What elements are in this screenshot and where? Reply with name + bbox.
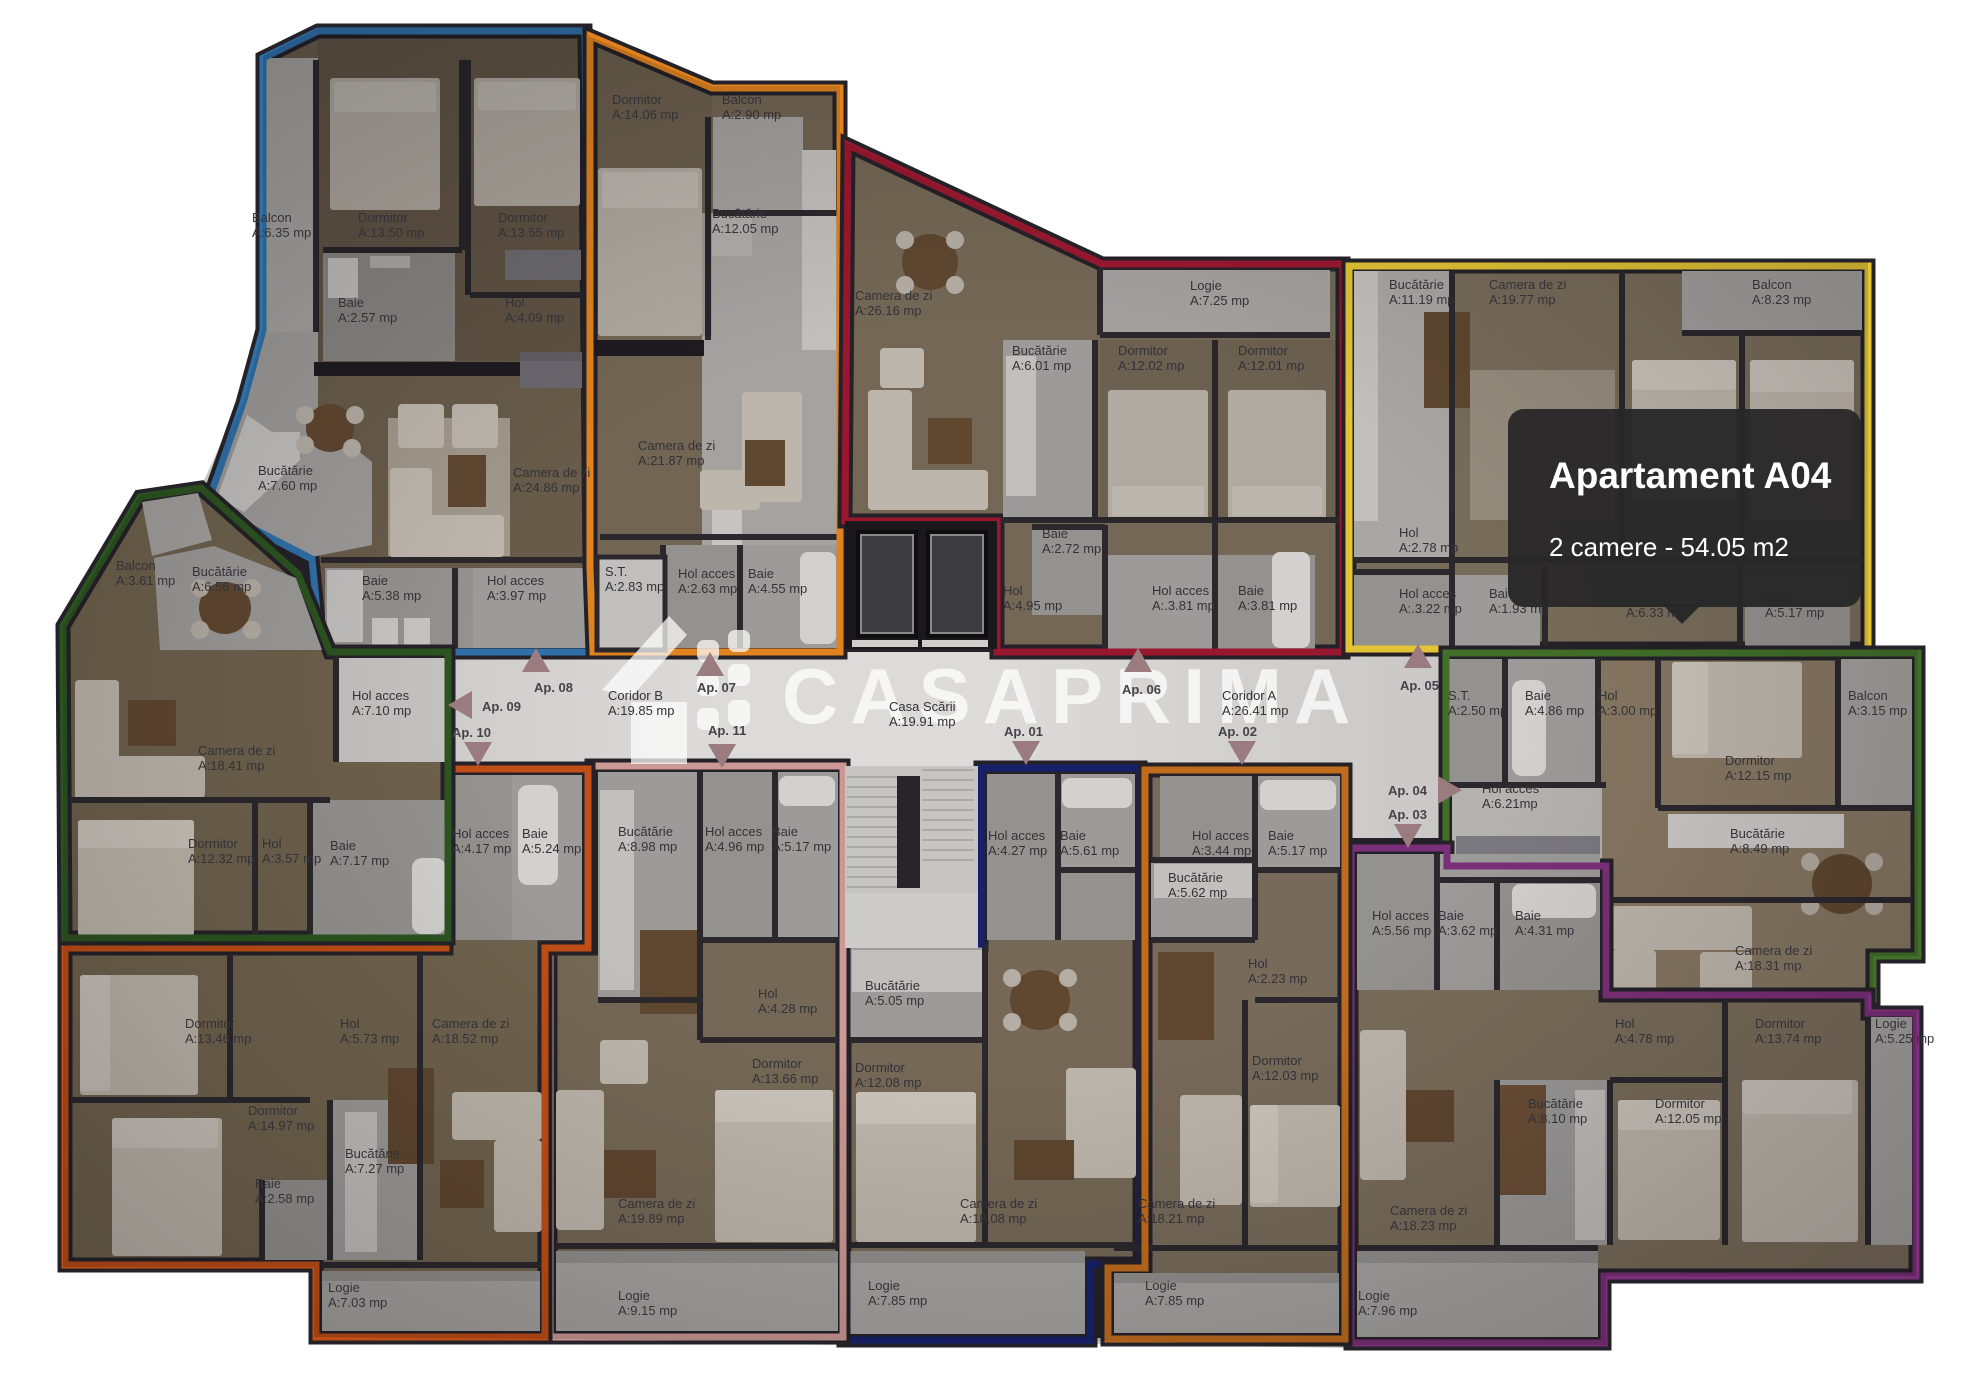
svg-text:A:7.85 mp: A:7.85 mp [868, 1293, 927, 1308]
svg-text:Camera de zi: Camera de zi [1735, 943, 1812, 958]
svg-text:Camera de zi: Camera de zi [618, 1196, 695, 1211]
svg-text:Coridor A: Coridor A [1222, 688, 1277, 703]
svg-text:Dormitor: Dormitor [1252, 1053, 1303, 1068]
svg-text:Baie: Baie [1238, 583, 1264, 598]
svg-text:Balcon: Balcon [252, 210, 292, 225]
svg-text:A:7.27 mp: A:7.27 mp [345, 1161, 404, 1176]
svg-text:A:11.19 mp: A:11.19 mp [1389, 292, 1455, 307]
svg-text:A:7.03 mp: A:7.03 mp [328, 1295, 387, 1310]
svg-text:Baie: Baie [1525, 688, 1551, 703]
svg-text:A:2.63 mp: A:2.63 mp [678, 581, 737, 596]
svg-text:A:5.38 mp: A:5.38 mp [362, 588, 421, 603]
svg-text:Logie: Logie [868, 1278, 900, 1293]
svg-text:Camera de zi: Camera de zi [432, 1016, 509, 1031]
svg-text:A:.3.81 mp: A:.3.81 mp [1152, 598, 1215, 613]
svg-text:A:12.01 mp: A:12.01 mp [1238, 358, 1305, 373]
svg-text:Dormitor: Dormitor [752, 1056, 803, 1071]
svg-text:Dormitor: Dormitor [185, 1016, 236, 1031]
svg-text:A:13.46 mp: A:13.46 mp [185, 1031, 252, 1046]
svg-text:A:26.16 mp: A:26.16 mp [855, 303, 922, 318]
svg-text:Bucătărie: Bucătărie [1012, 343, 1067, 358]
svg-text:Baie: Baie [1268, 828, 1294, 843]
svg-text:Baie: Baie [522, 826, 548, 841]
svg-text:A:5.24 mp: A:5.24 mp [522, 841, 581, 856]
svg-text:A:12.03 mp: A:12.03 mp [1252, 1068, 1319, 1083]
svg-text:Bucătărie: Bucătărie [865, 978, 920, 993]
svg-text:A:8.10 mp: A:8.10 mp [1528, 1111, 1587, 1126]
svg-text:S.T.: S.T. [1448, 688, 1470, 703]
svg-text:Camera de zi: Camera de zi [960, 1196, 1037, 1211]
svg-text:Dormitor: Dormitor [358, 210, 409, 225]
svg-text:A:9.15 mp: A:9.15 mp [618, 1303, 677, 1318]
svg-text:Ap. 01: Ap. 01 [1004, 724, 1043, 739]
svg-text:A:5.73 mp: A:5.73 mp [340, 1031, 399, 1046]
svg-text:A:19.77 mp: A:19.77 mp [1489, 292, 1556, 307]
svg-text:Balcon: Balcon [116, 558, 156, 573]
svg-text:A:4.78 mp: A:4.78 mp [1615, 1031, 1674, 1046]
svg-text:A:4.31 mp: A:4.31 mp [1515, 923, 1574, 938]
svg-text:A:5.25 mp: A:5.25 mp [1875, 1031, 1934, 1046]
svg-text:A:7.60 mp: A:7.60 mp [258, 478, 317, 493]
svg-text:A:13.74 mp: A:13.74 mp [1755, 1031, 1822, 1046]
svg-text:A:18.31 mp: A:18.31 mp [1735, 958, 1802, 973]
svg-text:A:3.62 mp: A:3.62 mp [1438, 923, 1497, 938]
svg-text:A:2.90 mp: A:2.90 mp [722, 107, 781, 122]
svg-text:A:5.17 mp: A:5.17 mp [1268, 843, 1327, 858]
svg-text:S.T.: S.T. [605, 564, 627, 579]
svg-text:Logie: Logie [1358, 1288, 1390, 1303]
svg-text:Hol: Hol [1399, 525, 1419, 540]
svg-text:A:5.61 mp: A:5.61 mp [1060, 843, 1119, 858]
svg-text:Dormitor: Dormitor [612, 92, 663, 107]
svg-text:A:19.89 mp: A:19.89 mp [618, 1211, 685, 1226]
svg-text:Camera de zi: Camera de zi [1138, 1196, 1215, 1211]
svg-text:A:2.50 mp: A:2.50 mp [1448, 703, 1507, 718]
svg-text:A:24.86 mp: A:24.86 mp [513, 480, 580, 495]
svg-text:A:5.56 mp: A:5.56 mp [1372, 923, 1431, 938]
svg-text:A:12.08 mp: A:12.08 mp [855, 1075, 922, 1090]
svg-text:Bucătărie: Bucătărie [1528, 1096, 1583, 1111]
svg-text:A:7.17 mp: A:7.17 mp [330, 853, 389, 868]
svg-text:Baie: Baie [338, 295, 364, 310]
svg-text:A:14.06 mp: A:14.06 mp [612, 107, 679, 122]
svg-text:2 camere - 54.05 m2: 2 camere - 54.05 m2 [1549, 532, 1789, 562]
svg-text:A:18.08 mp: A:18.08 mp [960, 1211, 1027, 1226]
svg-text:Logie: Logie [1875, 1016, 1907, 1031]
svg-text:Dormitor: Dormitor [1755, 1016, 1806, 1031]
svg-text:A:12.05 mp: A:12.05 mp [712, 221, 779, 236]
svg-text:Balcon: Balcon [722, 92, 762, 107]
svg-text:Ap. 10: Ap. 10 [452, 725, 491, 740]
svg-text:Bucătărie: Bucătărie [1168, 870, 1223, 885]
svg-text:Ap. 07: Ap. 07 [697, 680, 736, 695]
svg-text:Camera de zi: Camera de zi [855, 288, 932, 303]
svg-text:Casa Scării: Casa Scării [889, 699, 956, 714]
svg-text:Ap. 03: Ap. 03 [1388, 807, 1427, 822]
svg-text:Hol acces: Hol acces [1399, 586, 1457, 601]
svg-text:Dormitor: Dormitor [188, 836, 239, 851]
svg-text:A:.3.22 mp: A:.3.22 mp [1399, 601, 1462, 616]
svg-text:A:7.25 mp: A:7.25 mp [1190, 293, 1249, 308]
svg-text:Camera de zi: Camera de zi [1390, 1203, 1467, 1218]
svg-text:Bucătărie: Bucătărie [712, 206, 767, 221]
svg-text:Ap. 06: Ap. 06 [1122, 682, 1161, 697]
svg-text:A:12.32 mp: A:12.32 mp [188, 851, 255, 866]
svg-text:Hol: Hol [1598, 688, 1618, 703]
svg-text:Hol acces: Hol acces [1152, 583, 1210, 598]
svg-text:Bucătărie: Bucătărie [258, 463, 313, 478]
svg-text:A:18.41 mp: A:18.41 mp [198, 758, 265, 773]
svg-text:A:12.05 mp: A:12.05 mp [1655, 1111, 1722, 1126]
svg-text:Baie: Baie [330, 838, 356, 853]
svg-text:A:2.23 mp: A:2.23 mp [1248, 971, 1307, 986]
svg-text:A:18.21 mp: A:18.21 mp [1138, 1211, 1205, 1226]
svg-text:A:4.17 mp: A:4.17 mp [452, 841, 511, 856]
svg-text:Hol acces: Hol acces [352, 688, 410, 703]
svg-text:A:2.78 mp: A:2.78 mp [1399, 540, 1458, 555]
svg-text:A:13.50 mp: A:13.50 mp [358, 225, 425, 240]
svg-text:A:26.41 mp: A:26.41 mp [1222, 703, 1289, 718]
svg-text:A:8.98 mp: A:8.98 mp [618, 839, 677, 854]
svg-text:Logie: Logie [618, 1288, 650, 1303]
svg-text:Dormitor: Dormitor [498, 210, 549, 225]
svg-text:Baie: Baie [1060, 828, 1086, 843]
svg-text:Hol: Hol [505, 295, 525, 310]
svg-text:A:12.15 mp: A:12.15 mp [1725, 768, 1792, 783]
svg-text:A:3.00 mp: A:3.00 mp [1598, 703, 1657, 718]
svg-text:Bucătărie: Bucătărie [1730, 826, 1785, 841]
svg-text:Ap. 04: Ap. 04 [1388, 783, 1428, 798]
svg-text:Dormitor: Dormitor [855, 1060, 906, 1075]
svg-text:Baie: Baie [362, 573, 388, 588]
svg-text:Baie: Baie [772, 824, 798, 839]
svg-text:A:19.91 mp: A:19.91 mp [889, 714, 956, 729]
svg-text:A:4.09 mp: A:4.09 mp [505, 310, 564, 325]
svg-text:Dormitor: Dormitor [248, 1103, 299, 1118]
svg-text:A:14.97 mp: A:14.97 mp [248, 1118, 315, 1133]
svg-text:A:8.49 mp: A:8.49 mp [1730, 841, 1789, 856]
svg-text:A:4.96 mp: A:4.96 mp [705, 839, 764, 854]
svg-text:Bucătărie: Bucătărie [618, 824, 673, 839]
svg-text:Dormitor: Dormitor [1725, 753, 1776, 768]
svg-text:A:2.58 mp: A:2.58 mp [255, 1191, 314, 1206]
svg-text:A:3.81 mp: A:3.81 mp [1238, 598, 1297, 613]
svg-text:A:6.01 mp: A:6.01 mp [1012, 358, 1071, 373]
svg-text:Camera de zi: Camera de zi [638, 438, 715, 453]
svg-text:Logie: Logie [1190, 278, 1222, 293]
svg-text:Hol: Hol [262, 836, 282, 851]
svg-text:Hol acces: Hol acces [1482, 781, 1540, 796]
svg-text:A:19.85 mp: A:19.85 mp [608, 703, 675, 718]
svg-text:Hol: Hol [1615, 1016, 1635, 1031]
svg-text:A:7.85 mp: A:7.85 mp [1145, 1293, 1204, 1308]
svg-text:Hol acces: Hol acces [452, 826, 510, 841]
svg-text:A:2.57 mp: A:2.57 mp [338, 310, 397, 325]
svg-text:A:5.62 mp: A:5.62 mp [1168, 885, 1227, 900]
svg-text:A:7.96 mp: A:7.96 mp [1358, 1303, 1417, 1318]
svg-text:Hol acces: Hol acces [1372, 908, 1430, 923]
svg-text:Camera de zi: Camera de zi [1489, 277, 1566, 292]
svg-text:Balcon: Balcon [1848, 688, 1888, 703]
svg-text:Bucătărie: Bucătărie [345, 1146, 400, 1161]
svg-text:Ap. 09: Ap. 09 [482, 699, 521, 714]
svg-text:A:4.86 mp: A:4.86 mp [1525, 703, 1584, 718]
svg-text:A:6.21mp: A:6.21mp [1482, 796, 1538, 811]
svg-text:Apartament A04: Apartament A04 [1549, 455, 1832, 496]
svg-text:A:6.35 mp: A:6.35 mp [252, 225, 311, 240]
svg-text:Coridor B: Coridor B [608, 688, 663, 703]
svg-text:Bucătărie: Bucătărie [192, 564, 247, 579]
svg-text:Ap. 08: Ap. 08 [534, 680, 573, 695]
svg-text:A:3.97 mp: A:3.97 mp [487, 588, 546, 603]
svg-text:A:6.56 mp: A:6.56 mp [192, 579, 251, 594]
svg-text:A:4.28 mp: A:4.28 mp [758, 1001, 817, 1016]
svg-text:A:5.17 mp: A:5.17 mp [772, 839, 831, 854]
svg-text:A:5.05 mp: A:5.05 mp [865, 993, 924, 1008]
svg-text:Logie: Logie [1145, 1278, 1177, 1293]
svg-text:A:12.02 mp: A:12.02 mp [1118, 358, 1185, 373]
svg-text:A:21.87 mp: A:21.87 mp [638, 453, 705, 468]
svg-text:Balcon: Balcon [1752, 277, 1792, 292]
svg-text:A:4.95 mp: A:4.95 mp [1003, 598, 1062, 613]
svg-text:Hol: Hol [1003, 583, 1023, 598]
svg-text:Baie: Baie [255, 1176, 281, 1191]
svg-text:Ap. 11: Ap. 11 [708, 723, 746, 738]
svg-text:Logie: Logie [328, 1280, 360, 1295]
svg-text:A:2.72 mp: A:2.72 mp [1042, 541, 1101, 556]
svg-text:A:3.57 mp: A:3.57 mp [262, 851, 321, 866]
svg-text:A:3.44 mp: A:3.44 mp [1192, 843, 1251, 858]
svg-text:Hol acces: Hol acces [988, 828, 1046, 843]
svg-text:A:18.23 mp: A:18.23 mp [1390, 1218, 1457, 1233]
svg-text:Baie: Baie [1042, 526, 1068, 541]
svg-text:Dormitor: Dormitor [1118, 343, 1169, 358]
svg-text:Hol: Hol [1248, 956, 1268, 971]
svg-text:A:2.83 mp: A:2.83 mp [605, 579, 664, 594]
svg-text:A:4.55 mp: A:4.55 mp [748, 581, 807, 596]
svg-text:Hol: Hol [758, 986, 778, 1001]
svg-text:Baie: Baie [748, 566, 774, 581]
svg-text:Hol acces: Hol acces [487, 573, 545, 588]
svg-text:A:13.55 mp: A:13.55 mp [498, 225, 565, 240]
svg-text:A:13.66 mp: A:13.66 mp [752, 1071, 819, 1086]
svg-text:A:7.10 mp: A:7.10 mp [352, 703, 411, 718]
svg-text:Hol acces: Hol acces [1192, 828, 1250, 843]
svg-text:Hol acces: Hol acces [705, 824, 763, 839]
svg-text:Dormitor: Dormitor [1238, 343, 1289, 358]
svg-text:A:8.23 mp: A:8.23 mp [1752, 292, 1811, 307]
svg-text:Ap. 05: Ap. 05 [1400, 678, 1439, 693]
svg-text:A:4.27 mp: A:4.27 mp [988, 843, 1047, 858]
svg-text:Camera de zi: Camera de zi [198, 743, 275, 758]
svg-text:Hol acces: Hol acces [678, 566, 736, 581]
svg-text:Hol: Hol [340, 1016, 360, 1031]
svg-text:Camera de zi: Camera de zi [513, 465, 590, 480]
svg-text:Dormitor: Dormitor [1655, 1096, 1706, 1111]
svg-text:A:3.15 mp: A:3.15 mp [1848, 703, 1907, 718]
svg-text:A:5.17 mp: A:5.17 mp [1765, 605, 1824, 620]
svg-text:Baie: Baie [1438, 908, 1464, 923]
svg-text:Ap. 02: Ap. 02 [1218, 724, 1257, 739]
svg-text:A:18.52 mp: A:18.52 mp [432, 1031, 499, 1046]
svg-text:Baie: Baie [1515, 908, 1541, 923]
svg-text:Bucătărie: Bucătărie [1389, 277, 1444, 292]
svg-text:A:3.61 mp: A:3.61 mp [116, 573, 175, 588]
